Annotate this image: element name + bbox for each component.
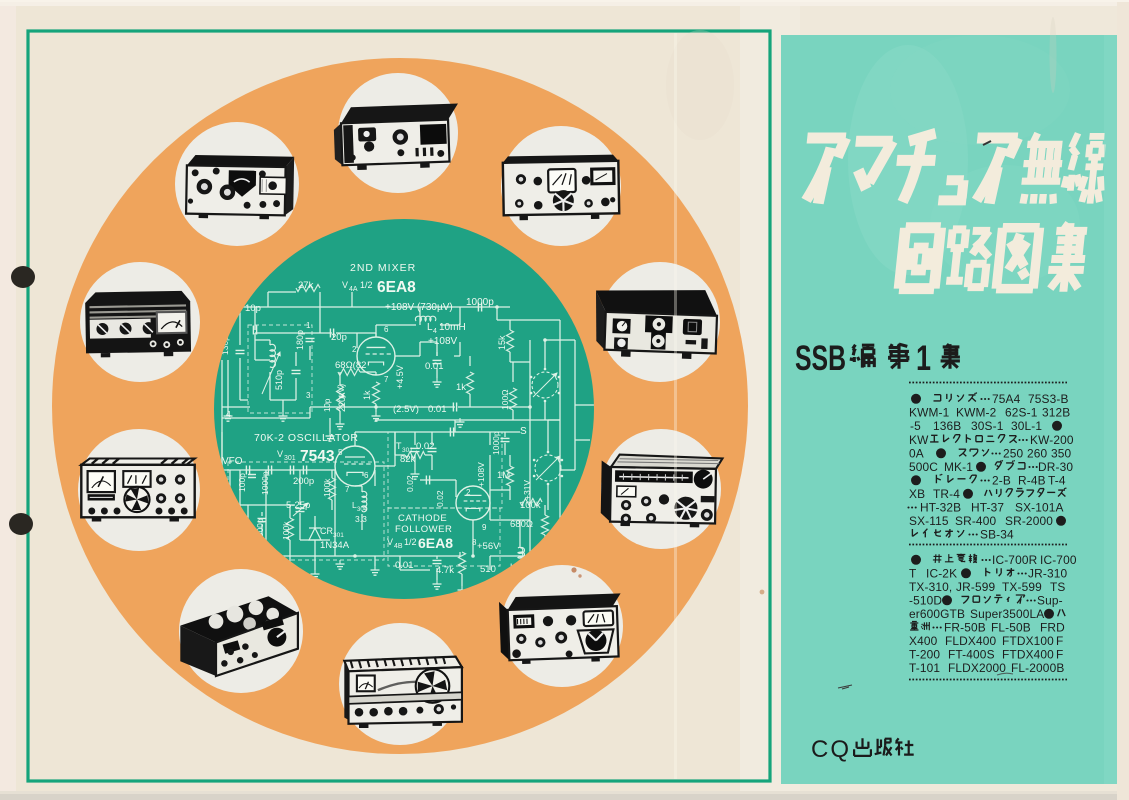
svg-text:1/2: 1/2 xyxy=(404,537,417,547)
svg-text:7543: 7543 xyxy=(300,448,335,465)
svg-text:3.3: 3.3 xyxy=(355,514,367,524)
svg-text:5: 5 xyxy=(338,448,343,457)
svg-text:TX-599: TX-599 xyxy=(1002,580,1042,594)
svg-text:180p: 180p xyxy=(295,330,305,350)
svg-text:75S3-B: 75S3-B xyxy=(1028,392,1069,406)
svg-text:TR-4: TR-4 xyxy=(933,487,960,501)
svg-text:6EA8: 6EA8 xyxy=(377,279,416,296)
svg-text:SSB: SSB xyxy=(795,339,846,378)
svg-text:FLDX400: FLDX400 xyxy=(945,634,997,648)
svg-text:R-4B: R-4B xyxy=(1018,474,1046,488)
svg-text:FTDX400: FTDX400 xyxy=(1002,648,1054,662)
svg-text:68Ω(82: 68Ω(82 xyxy=(335,360,366,371)
svg-text:136B: 136B xyxy=(933,419,961,433)
svg-text:JR-310: JR-310 xyxy=(1028,567,1067,581)
svg-text:FR-50B: FR-50B xyxy=(944,621,986,635)
svg-text:F: F xyxy=(1056,634,1063,648)
svg-text:9: 9 xyxy=(482,523,487,532)
svg-text:X400: X400 xyxy=(909,634,938,648)
svg-text:62S-1: 62S-1 xyxy=(1005,406,1038,420)
svg-text:260: 260 xyxy=(1027,447,1048,461)
svg-text:70K-2 OSCILLATOR: 70K-2 OSCILLATOR xyxy=(254,432,358,444)
svg-text:6: 6 xyxy=(384,325,389,334)
svg-text:TS: TS xyxy=(1050,580,1066,594)
svg-text:+108V (730µV): +108V (730µV) xyxy=(385,302,453,313)
svg-text:V: V xyxy=(277,449,283,459)
svg-text:680Ω: 680Ω xyxy=(510,519,533,530)
svg-text:0.01: 0.01 xyxy=(428,404,447,415)
svg-text:100Ω: 100Ω xyxy=(500,389,510,410)
svg-text:FTDX100: FTDX100 xyxy=(1002,634,1054,648)
svg-text:FOLLOWER: FOLLOWER xyxy=(395,524,452,535)
svg-text:301: 301 xyxy=(284,455,296,462)
svg-text:4.7k: 4.7k xyxy=(436,565,454,576)
svg-text:100p: 100p xyxy=(237,473,247,492)
svg-text:HT-32B: HT-32B xyxy=(920,501,961,515)
svg-text:0.01: 0.01 xyxy=(395,560,414,571)
svg-text:KWM-2: KWM-2 xyxy=(956,406,997,420)
svg-text:100k: 100k xyxy=(322,478,332,497)
svg-text:510p: 510p xyxy=(274,370,284,390)
svg-text:+31V: +31V xyxy=(522,480,532,500)
svg-text:350: 350 xyxy=(1051,447,1072,461)
svg-text:6EA8: 6EA8 xyxy=(418,535,453,551)
svg-text:30S-1: 30S-1 xyxy=(971,419,1004,433)
svg-text:SX-101A: SX-101A xyxy=(1015,501,1064,515)
svg-text:FRD: FRD xyxy=(1040,621,1065,635)
svg-text:HT-37: HT-37 xyxy=(971,501,1004,515)
svg-text:1000p: 1000p xyxy=(260,471,270,495)
svg-text:301: 301 xyxy=(402,447,413,454)
svg-text:KW: KW xyxy=(909,433,929,447)
svg-text:2ND MIXER: 2ND MIXER xyxy=(350,262,416,274)
svg-text:V: V xyxy=(387,537,393,547)
svg-text:JR-599: JR-599 xyxy=(956,580,995,594)
svg-text:T: T xyxy=(909,567,916,581)
svg-text:IC-2K: IC-2K xyxy=(926,567,957,581)
svg-text:20p: 20p xyxy=(331,332,347,343)
svg-text:VFO: VFO xyxy=(222,456,243,467)
svg-text:-510D: -510D xyxy=(909,594,942,608)
svg-text:KW-200: KW-200 xyxy=(1030,433,1074,447)
svg-text:10mH: 10mH xyxy=(439,322,466,333)
svg-text:er600GTB: er600GTB xyxy=(909,607,965,621)
svg-text:MK-1: MK-1 xyxy=(944,460,973,474)
svg-text:100k: 100k xyxy=(520,500,541,511)
svg-text:1: 1 xyxy=(306,321,311,330)
svg-text:4: 4 xyxy=(226,409,231,419)
svg-text:V: V xyxy=(342,280,348,290)
svg-text:1k: 1k xyxy=(456,382,466,393)
svg-text:0.02: 0.02 xyxy=(416,441,435,452)
svg-text:DR-30: DR-30 xyxy=(1038,460,1073,474)
svg-text:IC-700: IC-700 xyxy=(1040,553,1077,567)
svg-text:2-B: 2-B xyxy=(992,474,1011,488)
svg-text:TX-310,: TX-310, xyxy=(909,580,952,594)
svg-text:1000p: 1000p xyxy=(466,297,494,308)
svg-text:200p: 200p xyxy=(293,476,314,487)
svg-text:4B: 4B xyxy=(394,543,403,550)
svg-text:-5: -5 xyxy=(910,419,921,433)
svg-text:2: 2 xyxy=(352,345,357,354)
svg-text:T-101: T-101 xyxy=(909,661,940,675)
svg-text:6: 6 xyxy=(364,471,369,480)
svg-text:100k: 100k xyxy=(281,521,291,540)
svg-text:301: 301 xyxy=(333,532,344,539)
svg-text:SB-34: SB-34 xyxy=(980,528,1014,542)
svg-text:KWM-1: KWM-1 xyxy=(909,406,950,420)
svg-text:0A: 0A xyxy=(909,447,924,461)
svg-text:1M: 1M xyxy=(497,470,510,481)
svg-text:FT-400S: FT-400S xyxy=(948,648,995,662)
svg-text:0.02: 0.02 xyxy=(435,490,445,507)
svg-text:3: 3 xyxy=(306,391,311,400)
svg-text:1k: 1k xyxy=(362,390,372,400)
svg-text:250: 250 xyxy=(1003,447,1024,461)
svg-text:SR-400: SR-400 xyxy=(955,514,996,528)
svg-text:+56V: +56V xyxy=(477,541,500,552)
svg-text:F: F xyxy=(1056,648,1063,662)
svg-text:27k: 27k xyxy=(298,280,314,291)
svg-text:XB: XB xyxy=(909,487,925,501)
svg-text:FL-50B: FL-50B xyxy=(991,621,1031,635)
svg-text:+108V: +108V xyxy=(428,336,458,347)
svg-text:1N34A: 1N34A xyxy=(320,540,350,551)
svg-text:510: 510 xyxy=(480,564,496,575)
svg-text:(2.5V): (2.5V) xyxy=(393,404,419,415)
svg-text:FLDX2000: FLDX2000 xyxy=(948,661,1006,675)
svg-text:+108V: +108V xyxy=(476,462,486,487)
svg-text:75A4: 75A4 xyxy=(992,392,1021,406)
svg-text:CQ: CQ xyxy=(811,736,851,763)
svg-text:2: 2 xyxy=(466,488,471,497)
svg-text:7: 7 xyxy=(384,375,389,384)
svg-text:CATHODE: CATHODE xyxy=(398,513,447,524)
svg-text:220k: 220k xyxy=(337,392,347,412)
svg-text:IC-700R: IC-700R xyxy=(992,553,1038,567)
svg-text:T-4: T-4 xyxy=(1048,474,1066,488)
svg-text:82k: 82k xyxy=(400,454,416,465)
svg-text:30L-1: 30L-1 xyxy=(1011,419,1042,433)
svg-text:S: S xyxy=(520,426,527,437)
svg-text:1000p: 1000p xyxy=(491,431,501,455)
svg-text:1/2: 1/2 xyxy=(360,280,373,290)
svg-text:4: 4 xyxy=(433,328,437,335)
svg-text:Sup-: Sup- xyxy=(1037,594,1063,608)
svg-text:304: 304 xyxy=(357,507,368,513)
svg-text:+4.5V: +4.5V xyxy=(395,365,405,389)
svg-text:1: 1 xyxy=(916,339,931,378)
svg-text:10p: 10p xyxy=(245,303,261,314)
svg-text:5-25p: 5-25p xyxy=(286,500,310,511)
svg-text:SR-2000: SR-2000 xyxy=(1005,514,1053,528)
svg-text:T-200: T-200 xyxy=(909,648,940,662)
svg-text:312B: 312B xyxy=(1042,406,1070,420)
svg-text:Super3500LA: Super3500LA xyxy=(970,607,1044,621)
svg-text:SX-115: SX-115 xyxy=(909,514,949,528)
svg-text:CR: CR xyxy=(320,526,333,536)
svg-text:0.01: 0.01 xyxy=(425,361,444,372)
svg-text:500C: 500C xyxy=(909,460,938,474)
svg-text:4A: 4A xyxy=(349,286,358,293)
svg-text:0.02: 0.02 xyxy=(405,475,415,492)
svg-text:FL-2000B: FL-2000B xyxy=(1011,661,1064,675)
svg-text:8: 8 xyxy=(472,538,477,547)
svg-text:15k: 15k xyxy=(497,335,507,350)
svg-text:7: 7 xyxy=(345,485,350,494)
svg-text:10p: 10p xyxy=(323,398,332,412)
